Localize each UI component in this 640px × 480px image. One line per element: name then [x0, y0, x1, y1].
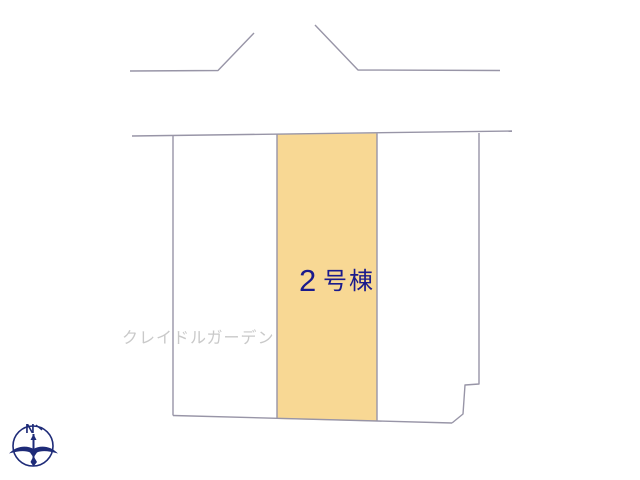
lot-number-label: 2 — [299, 263, 316, 298]
watermark-text: クレイドルガーデン — [122, 328, 275, 347]
road-edge-left-line — [130, 33, 254, 71]
parcel-right-boundary-line — [452, 133, 479, 423]
compass-north-icon: N — [9, 421, 58, 467]
site-plan-diagram: 2 号棟 クレイドルガーデン N — [0, 0, 640, 480]
road-edge-right-line — [315, 25, 500, 71]
site-plan-page: 2 号棟 クレイドルガーデン N — [0, 0, 640, 480]
compass-north-label: N — [25, 421, 34, 436]
compass-tail — [31, 456, 38, 467]
lot-suffix-label: 号棟 — [323, 268, 375, 295]
